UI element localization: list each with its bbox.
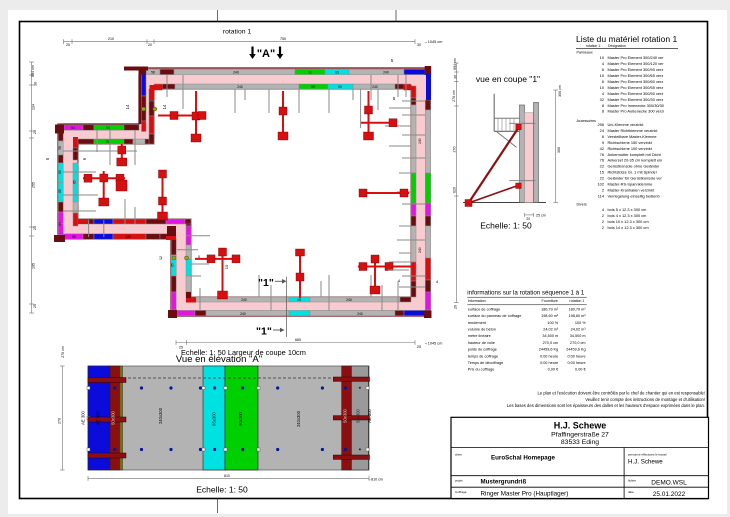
svg-text:20: 20 — [417, 345, 421, 349]
svg-text:Echelle: 1: 50: Echelle: 1: 50 — [480, 221, 532, 231]
svg-text:120: 120 — [125, 235, 131, 239]
svg-text:2: 2 — [602, 188, 604, 193]
svg-text:Verriegelung einseitig bedienb: Verriegelung einseitig bedienb — [608, 194, 660, 199]
svg-text:Master Pro Element 300/50 verz: Master Pro Element 300/50 verz — [608, 91, 664, 96]
svg-text:rotation 1: rotation 1 — [569, 299, 584, 303]
svg-text:270 cm: 270 cm — [61, 346, 65, 358]
svg-text:6: 6 — [602, 79, 604, 84]
svg-text:12: 12 — [159, 256, 163, 260]
svg-text:20: 20 — [33, 130, 37, 134]
svg-text:Master-RS-Spannklemme: Master-RS-Spannklemme — [608, 182, 653, 187]
svg-text:14: 14 — [125, 104, 130, 109]
svg-text:"A": "A" — [257, 48, 275, 60]
svg-text:58: 58 — [151, 71, 155, 75]
svg-text:50x300: 50x300 — [356, 408, 361, 422]
svg-text:270 cm: 270 cm — [452, 90, 456, 102]
svg-text:300: 300 — [557, 147, 561, 153]
svg-text:55: 55 — [72, 235, 76, 239]
svg-text:180,79 m²: 180,79 m² — [541, 307, 559, 311]
svg-text:hauteur de voile: hauteur de voile — [468, 341, 495, 345]
svg-text:665: 665 — [295, 338, 301, 342]
svg-text:55: 55 — [71, 126, 75, 130]
svg-text:90x300: 90x300 — [238, 411, 243, 425]
svg-text:30: 30 — [417, 43, 421, 47]
svg-text:240x300: 240x300 — [296, 410, 301, 427]
svg-text:Master-Kranhaken verzinkt: Master-Kranhaken verzinkt — [608, 188, 655, 193]
svg-text:180,79 m²: 180,79 m² — [568, 307, 586, 311]
svg-text:Master Pro Element 300/120 ver: Master Pro Element 300/120 ver — [608, 61, 665, 66]
svg-text:240: 240 — [418, 138, 422, 144]
svg-text:volume de béton: volume de béton — [468, 328, 496, 332]
svg-text:240: 240 — [241, 298, 247, 302]
svg-text:DEMO.WSL: DEMO.WSL — [651, 480, 687, 487]
svg-text:270,0 cm: 270,0 cm — [543, 341, 559, 345]
svg-text:Verstellbare Master-Klemme: Verstellbare Master-Klemme — [608, 134, 657, 139]
svg-text:bois 5 x 12.3 x 300 cm: bois 5 x 12.3 x 300 cm — [608, 207, 647, 212]
svg-text:240: 240 — [233, 71, 239, 75]
svg-text:100 %: 100 % — [547, 321, 558, 325]
svg-text:Coffrage: Coffrage — [455, 490, 467, 494]
svg-text:22: 22 — [600, 164, 604, 169]
svg-text:Divers: Divers — [577, 202, 587, 206]
svg-text:client: client — [455, 453, 462, 457]
svg-text:76: 76 — [600, 152, 604, 157]
svg-text:50x300: 50x300 — [343, 408, 348, 422]
svg-text:personne effectuant le travail: personne effectuant le travail — [628, 453, 667, 457]
svg-text:Master Pro Element 300/55 verz: Master Pro Element 300/55 verz — [608, 85, 664, 90]
svg-text:Ankermutter komplett mit Dicht: Ankermutter komplett mit Dicht — [608, 152, 662, 157]
svg-text:83533 Eding: 83533 Eding — [561, 439, 599, 446]
svg-text:bois 4 x 12.3 x 300 cm: bois 4 x 12.3 x 300 cm — [608, 213, 647, 218]
svg-text:surface de coffrage: surface de coffrage — [468, 307, 500, 311]
svg-text:6: 6 — [602, 134, 604, 139]
svg-text:65: 65 — [335, 71, 339, 75]
svg-text:65x300: 65x300 — [212, 411, 217, 425]
svg-text:58: 58 — [58, 146, 62, 150]
svg-text:Geländer für Gerüstkonsole ver: Geländer für Gerüstkonsole ver — [608, 176, 663, 181]
svg-text:240: 240 — [383, 71, 389, 75]
svg-text:Gerüstkonsole ohne Geländer: Gerüstkonsole ohne Geländer — [608, 164, 661, 169]
svg-text:76: 76 — [600, 158, 604, 163]
svg-text:20: 20 — [454, 305, 458, 309]
svg-text:Master Pro Element 300/60 verz: Master Pro Element 300/60 verz — [608, 79, 664, 84]
svg-text:25.01.2022: 25.01.2022 — [653, 491, 686, 498]
svg-text:Veuillez tenir compte des inst: Veuillez tenir compte des instructions d… — [585, 397, 705, 402]
svg-text:750: 750 — [280, 37, 286, 41]
svg-text:55: 55 — [58, 222, 62, 226]
svg-text:6: 6 — [602, 67, 604, 72]
svg-text:Accessoires: Accessoires — [577, 119, 597, 123]
svg-text:270: 270 — [58, 418, 62, 424]
svg-text:mètre linéaire: mètre linéaire — [468, 334, 491, 338]
svg-text:temps de coffrage: temps de coffrage — [468, 354, 498, 358]
svg-text:296: 296 — [598, 122, 605, 127]
svg-text:10: 10 — [224, 264, 229, 269]
svg-text:Pfaffingerstraße 27: Pfaffingerstraße 27 — [551, 432, 609, 439]
svg-text:rendement: rendement — [468, 321, 487, 325]
svg-text:Richtschiene 100 verzinkt: Richtschiene 100 verzinkt — [608, 146, 653, 151]
svg-text:0:00 heure: 0:00 heure — [567, 361, 585, 365]
svg-text:Les bases des dimensions sont: Les bases des dimensions sont les épaiss… — [507, 403, 705, 408]
svg-text:65: 65 — [338, 85, 342, 89]
svg-text:9: 9 — [602, 140, 604, 145]
svg-text:Fourniture: Fourniture — [542, 299, 558, 303]
svg-text:65: 65 — [171, 263, 175, 267]
svg-text:694 cm: 694 cm — [31, 65, 35, 77]
svg-text:bois 14 x 12.3 x 300 cm: bois 14 x 12.3 x 300 cm — [608, 225, 649, 230]
svg-text:Richtstütze Gr. 1 mit Spindel: Richtstütze Gr. 1 mit Spindel — [608, 170, 657, 175]
svg-text:8: 8 — [602, 103, 604, 108]
svg-text:"1": "1" — [258, 277, 274, 289]
svg-text:Master Pro Innenecke 300/30/30: Master Pro Innenecke 300/30/30 — [608, 103, 665, 108]
svg-text:fichier: fichier — [628, 479, 636, 483]
svg-text:114: 114 — [598, 194, 605, 199]
svg-text:22: 22 — [600, 176, 604, 181]
svg-text:2: 2 — [602, 225, 604, 230]
svg-text:0:00 heure: 0:00 heure — [567, 354, 585, 358]
svg-text:14: 14 — [162, 104, 167, 109]
svg-text:2: 2 — [602, 219, 604, 224]
svg-text:Master Pro Element 300/65 verz: Master Pro Element 300/65 verz — [608, 73, 664, 78]
svg-text:Echelle: 1: 50: Echelle: 1: 50 — [196, 485, 248, 495]
svg-text:100 %: 100 % — [575, 321, 586, 325]
svg-text:90: 90 — [308, 71, 312, 75]
svg-text:25: 25 — [33, 226, 37, 230]
svg-text:EuroSchal Homepage: EuroSchal Homepage — [491, 455, 556, 462]
svg-text:0,00 €: 0,00 € — [548, 368, 559, 372]
svg-text:694 cm: 694 cm — [453, 58, 457, 70]
svg-text:Uni-Klemme verzinkt: Uni-Klemme verzinkt — [608, 122, 645, 127]
svg-text:24459,6 Kg: 24459,6 Kg — [566, 348, 585, 352]
svg-text:vue en coupe "1": vue en coupe "1" — [476, 74, 540, 84]
svg-text:270,0 cm: 270,0 cm — [570, 341, 586, 345]
svg-text:300 cm: 300 cm — [558, 85, 562, 97]
svg-text:Désignation: Désignation — [608, 44, 626, 48]
svg-text:198,60 m²: 198,60 m² — [568, 314, 586, 318]
svg-text:240x300: 240x300 — [158, 407, 163, 424]
svg-text:date: date — [628, 490, 634, 494]
svg-text:AE 300: AE 300 — [367, 408, 372, 422]
svg-text:Panneaux: Panneaux — [577, 50, 593, 54]
svg-text:240: 240 — [346, 298, 352, 302]
svg-text:Richtschiene 150 verzinkt: Richtschiene 150 verzinkt — [608, 140, 653, 145]
svg-text:→810 cm: →810 cm — [368, 478, 383, 482]
svg-text:270: 270 — [453, 147, 457, 153]
svg-text:102: 102 — [598, 182, 605, 187]
svg-text:0,00 €: 0,00 € — [575, 368, 586, 372]
svg-text:134: 134 — [32, 104, 36, 110]
svg-text:240: 240 — [357, 312, 363, 316]
svg-text:210: 210 — [108, 37, 114, 41]
svg-text:32: 32 — [600, 97, 604, 102]
svg-text:20: 20 — [148, 43, 152, 47]
svg-text:240: 240 — [237, 85, 243, 89]
svg-text:65: 65 — [297, 298, 301, 302]
svg-text:Master Pro Element 300/30 verz: Master Pro Element 300/30 verz — [608, 97, 664, 102]
svg-text:240: 240 — [372, 85, 378, 89]
svg-text:2: 2 — [602, 213, 604, 218]
svg-text:Ringer Master Pro (Hauptlager): Ringer Master Pro (Hauptlager) — [481, 490, 569, 497]
svg-text:Le plan et l'exécution doivent: Le plan et l'exécution doivent être cont… — [538, 391, 705, 396]
svg-text:surface du panneau de coffrage: surface du panneau de coffrage — [468, 314, 522, 318]
svg-text:15: 15 — [600, 170, 604, 175]
svg-text:25: 25 — [33, 304, 37, 308]
svg-text:30: 30 — [454, 75, 458, 79]
svg-text:Ankerset 20-35 cm komplett ein: Ankerset 20-35 cm komplett ein — [608, 158, 663, 163]
svg-text:AE 300: AE 300 — [81, 410, 86, 424]
svg-text:informations sur la rotation: informations sur la rotation séquence 1 … — [467, 290, 585, 297]
svg-text:→1045 cm: →1045 cm — [424, 40, 442, 44]
svg-text:rotation 1: rotation 1 — [223, 29, 252, 36]
svg-text:50x300: 50x300 — [111, 410, 116, 424]
svg-text:0:00 heure: 0:00 heure — [540, 361, 558, 365]
svg-text:Master Pro Element 300/240 ver: Master Pro Element 300/240 ver — [608, 55, 665, 60]
svg-text:Vue en élévation "A": Vue en élévation "A" — [176, 354, 262, 365]
svg-text:240: 240 — [240, 312, 246, 316]
svg-text:information: information — [468, 299, 486, 303]
svg-text:195: 195 — [32, 263, 36, 269]
svg-text:34,500 m: 34,500 m — [542, 334, 558, 338]
svg-text:90: 90 — [311, 85, 315, 89]
svg-text:H.J. Schewe: H.J. Schewe — [628, 459, 663, 466]
svg-text:rotation 1: rotation 1 — [586, 44, 600, 48]
svg-text:Temps de décoffrage: Temps de décoffrage — [468, 361, 503, 365]
svg-text:25: 25 — [66, 43, 70, 47]
svg-text:H.J. Schewe: H.J. Schewe — [554, 421, 607, 431]
svg-text:Prix du coffrage: Prix du coffrage — [468, 368, 495, 372]
svg-text:"1": "1" — [256, 326, 272, 338]
svg-text:8: 8 — [602, 109, 604, 114]
svg-text:Mustergrundriß: Mustergrundriß — [481, 479, 527, 486]
svg-text:30: 30 — [34, 82, 38, 86]
svg-text:→1045 cm: →1045 cm — [424, 342, 442, 346]
svg-text:0:00 heure: 0:00 heure — [540, 354, 558, 358]
svg-text:65: 65 — [58, 170, 62, 174]
svg-text:Liste du matériel rotation 1: Liste du matériel rotation 1 — [576, 34, 677, 44]
svg-text:24,02 m³: 24,02 m³ — [571, 328, 587, 332]
svg-text:810: 810 — [224, 474, 230, 478]
svg-text:90: 90 — [106, 126, 110, 130]
svg-text:42: 42 — [600, 146, 604, 151]
svg-text:620: 620 — [453, 187, 457, 193]
svg-text:bois 10 x 12.3 x 300 cm: bois 10 x 12.3 x 300 cm — [608, 219, 649, 224]
svg-text:90: 90 — [106, 140, 110, 144]
svg-text:65: 65 — [58, 189, 62, 193]
svg-text:Master Pro Element 300/90 verz: Master Pro Element 300/90 verz — [608, 67, 664, 72]
svg-text:255: 255 — [32, 182, 36, 188]
svg-text:34,500 m: 34,500 m — [570, 334, 586, 338]
svg-text:AE 300: AE 300 — [96, 410, 101, 424]
svg-text:65: 65 — [73, 180, 77, 184]
svg-text:Master Pro Außenecke 300 verzi: Master Pro Außenecke 300 verzi — [608, 109, 665, 114]
svg-text:24,02 m³: 24,02 m³ — [543, 328, 559, 332]
svg-text:198,60 m²: 198,60 m² — [541, 314, 559, 318]
svg-text:projet: projet — [455, 479, 463, 483]
svg-text:240: 240 — [418, 247, 422, 253]
svg-text:24459,6 Kg: 24459,6 Kg — [539, 348, 558, 352]
svg-text:25 cm: 25 cm — [536, 214, 546, 218]
svg-text:Master Richtklemme verzinkt: Master Richtklemme verzinkt — [608, 128, 659, 133]
svg-text:poids du coffrage: poids du coffrage — [468, 348, 497, 352]
